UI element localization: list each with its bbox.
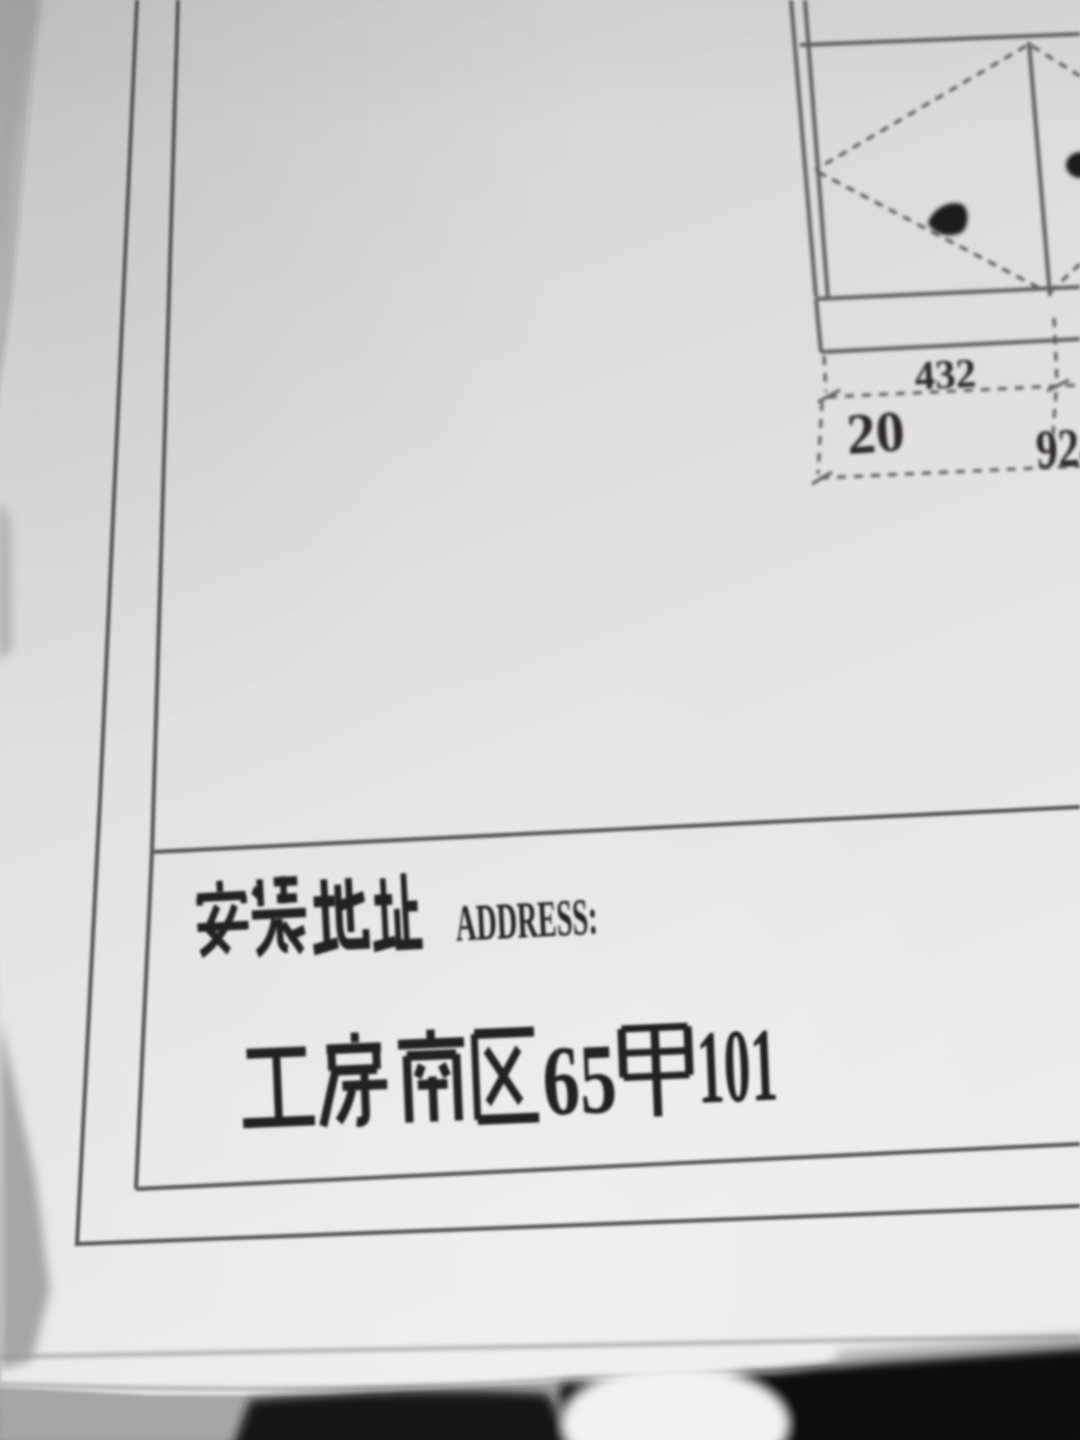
svg-text:ADDRESS:: ADDRESS: (454, 889, 599, 953)
svg-text:20: 20 (844, 398, 906, 467)
svg-text:432: 432 (913, 349, 977, 398)
svg-text:924: 924 (1034, 416, 1080, 480)
svg-text:101: 101 (695, 1006, 780, 1126)
svg-text:65: 65 (540, 1023, 619, 1137)
